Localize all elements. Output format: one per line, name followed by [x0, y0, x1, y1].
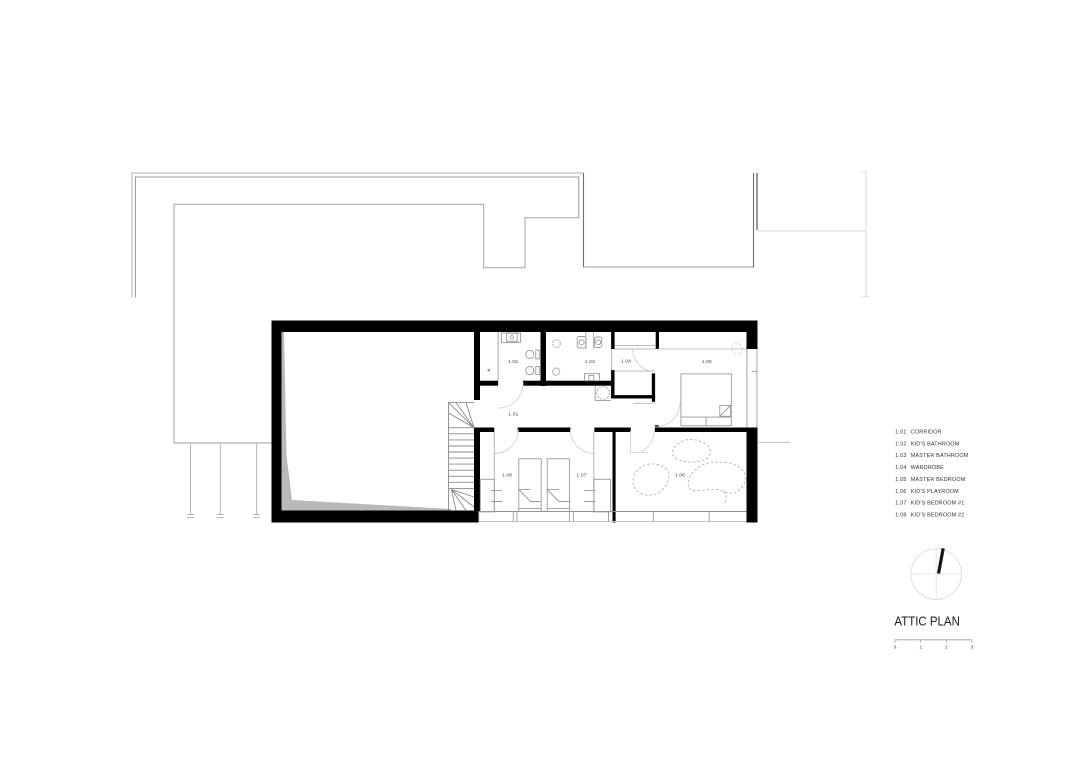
svg-text:1.03: 1.03 [585, 359, 595, 365]
svg-text:1.02: 1.02 [895, 441, 906, 447]
svg-text:3: 3 [971, 644, 974, 649]
svg-text:ATTIC PLAN: ATTIC PLAN [894, 614, 960, 629]
svg-text:1.01: 1.01 [895, 430, 906, 436]
svg-text:1.02: 1.02 [508, 359, 518, 365]
svg-text:1.05: 1.05 [895, 477, 906, 483]
svg-text:0: 0 [894, 644, 897, 649]
svg-text:1.01: 1.01 [508, 412, 518, 418]
svg-text:1.04: 1.04 [621, 359, 631, 365]
svg-text:MASTER BEDROOM: MASTER BEDROOM [911, 477, 966, 483]
svg-text:1.08: 1.08 [895, 513, 906, 519]
svg-text:1.07: 1.07 [895, 501, 906, 507]
svg-text:1: 1 [919, 644, 922, 649]
svg-text:1.03: 1.03 [895, 453, 906, 459]
svg-text:1.08: 1.08 [502, 472, 512, 478]
svg-text:1.07: 1.07 [576, 472, 586, 478]
svg-text:1.06: 1.06 [895, 489, 906, 495]
svg-text:WARDROBE: WARDROBE [911, 465, 944, 471]
svg-text:KID'S BEDROOM #1: KID'S BEDROOM #1 [911, 501, 965, 507]
svg-text:1.04: 1.04 [895, 465, 906, 471]
svg-text:1.05: 1.05 [702, 359, 712, 365]
svg-text:1.06: 1.06 [675, 472, 685, 478]
svg-text:CORRIDOR: CORRIDOR [911, 430, 942, 436]
svg-text:KID'S BEDROOM #2: KID'S BEDROOM #2 [911, 513, 965, 519]
svg-text:2: 2 [945, 644, 948, 649]
svg-text:KID'S BATHROOM: KID'S BATHROOM [911, 441, 960, 447]
svg-text:MASTER BATHROOM: MASTER BATHROOM [911, 453, 969, 459]
svg-text:KID'S PLAYROOM: KID'S PLAYROOM [911, 489, 959, 495]
